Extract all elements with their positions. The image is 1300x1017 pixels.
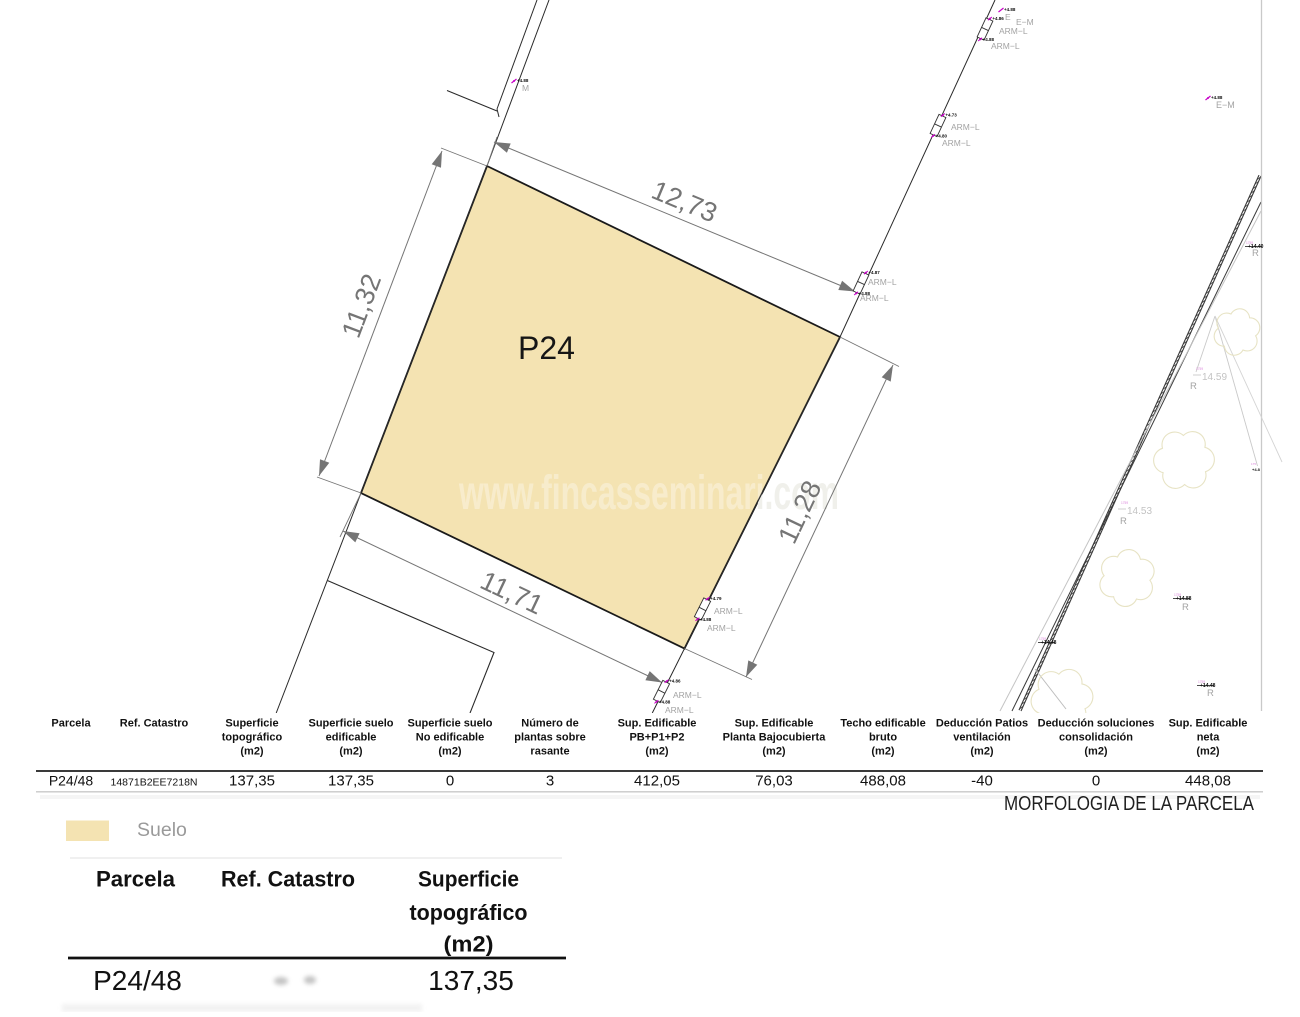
svg-text:Sup. Edificable: Sup. Edificable [735, 718, 814, 730]
svg-text:76,03: 76,03 [755, 773, 793, 790]
svg-text:P24/48: P24/48 [93, 965, 182, 996]
svg-text:Ref. Catastro: Ref. Catastro [221, 867, 355, 892]
svg-text:R: R [1252, 248, 1259, 259]
svg-text:Sup. Edificable: Sup. Edificable [1169, 718, 1248, 730]
svg-text:bruto: bruto [869, 732, 897, 744]
svg-text:1759: 1759 [1198, 680, 1205, 684]
svg-text:consolidación: consolidación [1059, 732, 1133, 744]
svg-text:R: R [1207, 688, 1214, 699]
svg-text:1759: 1759 [1246, 241, 1253, 245]
svg-text:+4.86: +4.86 [669, 679, 681, 684]
svg-text:Superficie: Superficie [418, 867, 519, 892]
svg-text:(m2): (m2) [762, 746, 786, 758]
svg-text:+4.88: +4.88 [659, 699, 671, 704]
svg-text:Techo edificable: Techo edificable [840, 718, 925, 730]
svg-text:1759: 1759 [1121, 501, 1128, 505]
svg-text:P24/48: P24/48 [49, 773, 94, 789]
svg-text:topográfico: topográfico [222, 732, 283, 744]
svg-text:488,08: 488,08 [860, 773, 906, 790]
svg-text:(m2): (m2) [970, 746, 994, 758]
svg-text:(m2): (m2) [240, 746, 264, 758]
svg-text:ARM−L: ARM−L [714, 606, 743, 616]
svg-text:448,08: 448,08 [1185, 773, 1231, 790]
svg-text:ARM−L: ARM−L [868, 277, 897, 287]
svg-text:ARM−L: ARM−L [942, 138, 971, 148]
svg-text:Parcela: Parcela [51, 718, 91, 730]
svg-text:Número de: Número de [521, 718, 578, 730]
svg-text:3: 3 [546, 773, 554, 790]
svg-text:neta: neta [1197, 732, 1221, 744]
svg-text:137,35: 137,35 [428, 965, 514, 996]
svg-text:R: R [1190, 381, 1197, 392]
svg-text:175: 175 [1251, 462, 1256, 466]
svg-text:No edificable: No edificable [416, 732, 484, 744]
svg-text:topográfico: topográfico [410, 900, 528, 925]
svg-text:Superficie suelo: Superficie suelo [408, 718, 493, 730]
svg-text:+4.86: +4.86 [992, 16, 1004, 21]
svg-text:E−M: E−M [1216, 100, 1235, 110]
svg-text:Suelo: Suelo [137, 819, 187, 841]
svg-text:+4.87: +4.87 [868, 270, 880, 275]
svg-text:ARM−L: ARM−L [673, 690, 702, 700]
svg-text:0: 0 [1092, 773, 1100, 790]
svg-text:ARM−L: ARM−L [991, 41, 1020, 51]
svg-text:ARM−L: ARM−L [999, 26, 1028, 36]
svg-text:E−M: E−M [1016, 17, 1034, 27]
svg-text:Sup. Edificable: Sup. Edificable [618, 718, 697, 730]
svg-text:Ref. Catastro: Ref. Catastro [120, 718, 189, 730]
svg-text:P24: P24 [518, 330, 575, 366]
svg-text:ventilación: ventilación [953, 732, 1011, 744]
svg-text:(m2): (m2) [645, 746, 669, 758]
svg-text:(m2): (m2) [1084, 746, 1108, 758]
svg-text:MORFOLOGIA DE LA PARCELA: MORFOLOGIA DE LA PARCELA [1004, 793, 1255, 815]
svg-text:Planta Bajocubierta: Planta Bajocubierta [723, 732, 827, 744]
svg-text:14.59: 14.59 [1202, 372, 1227, 383]
svg-text:M: M [522, 83, 529, 93]
svg-text:Superficie: Superficie [225, 718, 278, 730]
svg-text:Superficie suelo: Superficie suelo [309, 718, 394, 730]
svg-text:(m2): (m2) [339, 746, 363, 758]
svg-text:+4.79: +4.79 [710, 596, 722, 601]
svg-text:PB+P1+P2: PB+P1+P2 [629, 732, 684, 744]
svg-text:(m2): (m2) [871, 746, 895, 758]
svg-text:14871B2EE7218N: 14871B2EE7218N [111, 777, 198, 789]
svg-text:ARM−L: ARM−L [860, 293, 889, 303]
svg-text:rasante: rasante [530, 746, 569, 758]
svg-text:+4.73: +4.73 [945, 113, 957, 118]
svg-text:1759: 1759 [1196, 367, 1203, 371]
svg-text:1759: 1759 [1174, 593, 1181, 597]
svg-text:(m2): (m2) [438, 746, 462, 758]
svg-text:+4.8: +4.8 [1252, 467, 1261, 472]
svg-text:Parcela: Parcela [96, 867, 176, 892]
svg-text:(m2): (m2) [1196, 746, 1220, 758]
svg-text:+4.88: +4.88 [1004, 7, 1016, 12]
svg-text:ARM−L: ARM−L [707, 623, 736, 633]
svg-text:137,35: 137,35 [328, 773, 374, 790]
svg-text:1759: 1759 [1039, 637, 1046, 641]
svg-text:Deducción soluciones: Deducción soluciones [1038, 718, 1155, 730]
svg-text:412,05: 412,05 [634, 773, 680, 790]
svg-text:E: E [1005, 12, 1011, 22]
svg-text:plantas sobre: plantas sobre [514, 732, 586, 744]
svg-text:edificable: edificable [326, 732, 377, 744]
svg-text:0: 0 [446, 773, 454, 790]
svg-text:R: R [1120, 516, 1127, 527]
svg-text:ARM−L: ARM−L [951, 122, 980, 132]
svg-text:+4.88: +4.88 [700, 617, 712, 622]
svg-text:14.53: 14.53 [1127, 506, 1152, 517]
svg-text:(m2): (m2) [444, 932, 494, 957]
svg-text:137,35: 137,35 [229, 773, 275, 790]
svg-text:Deducción Patios: Deducción Patios [936, 718, 1028, 730]
svg-text:R: R [1182, 602, 1189, 613]
svg-text:-40: -40 [971, 773, 993, 790]
svg-text:www.fincasseminari.com: www.fincasseminari.com [458, 467, 839, 520]
